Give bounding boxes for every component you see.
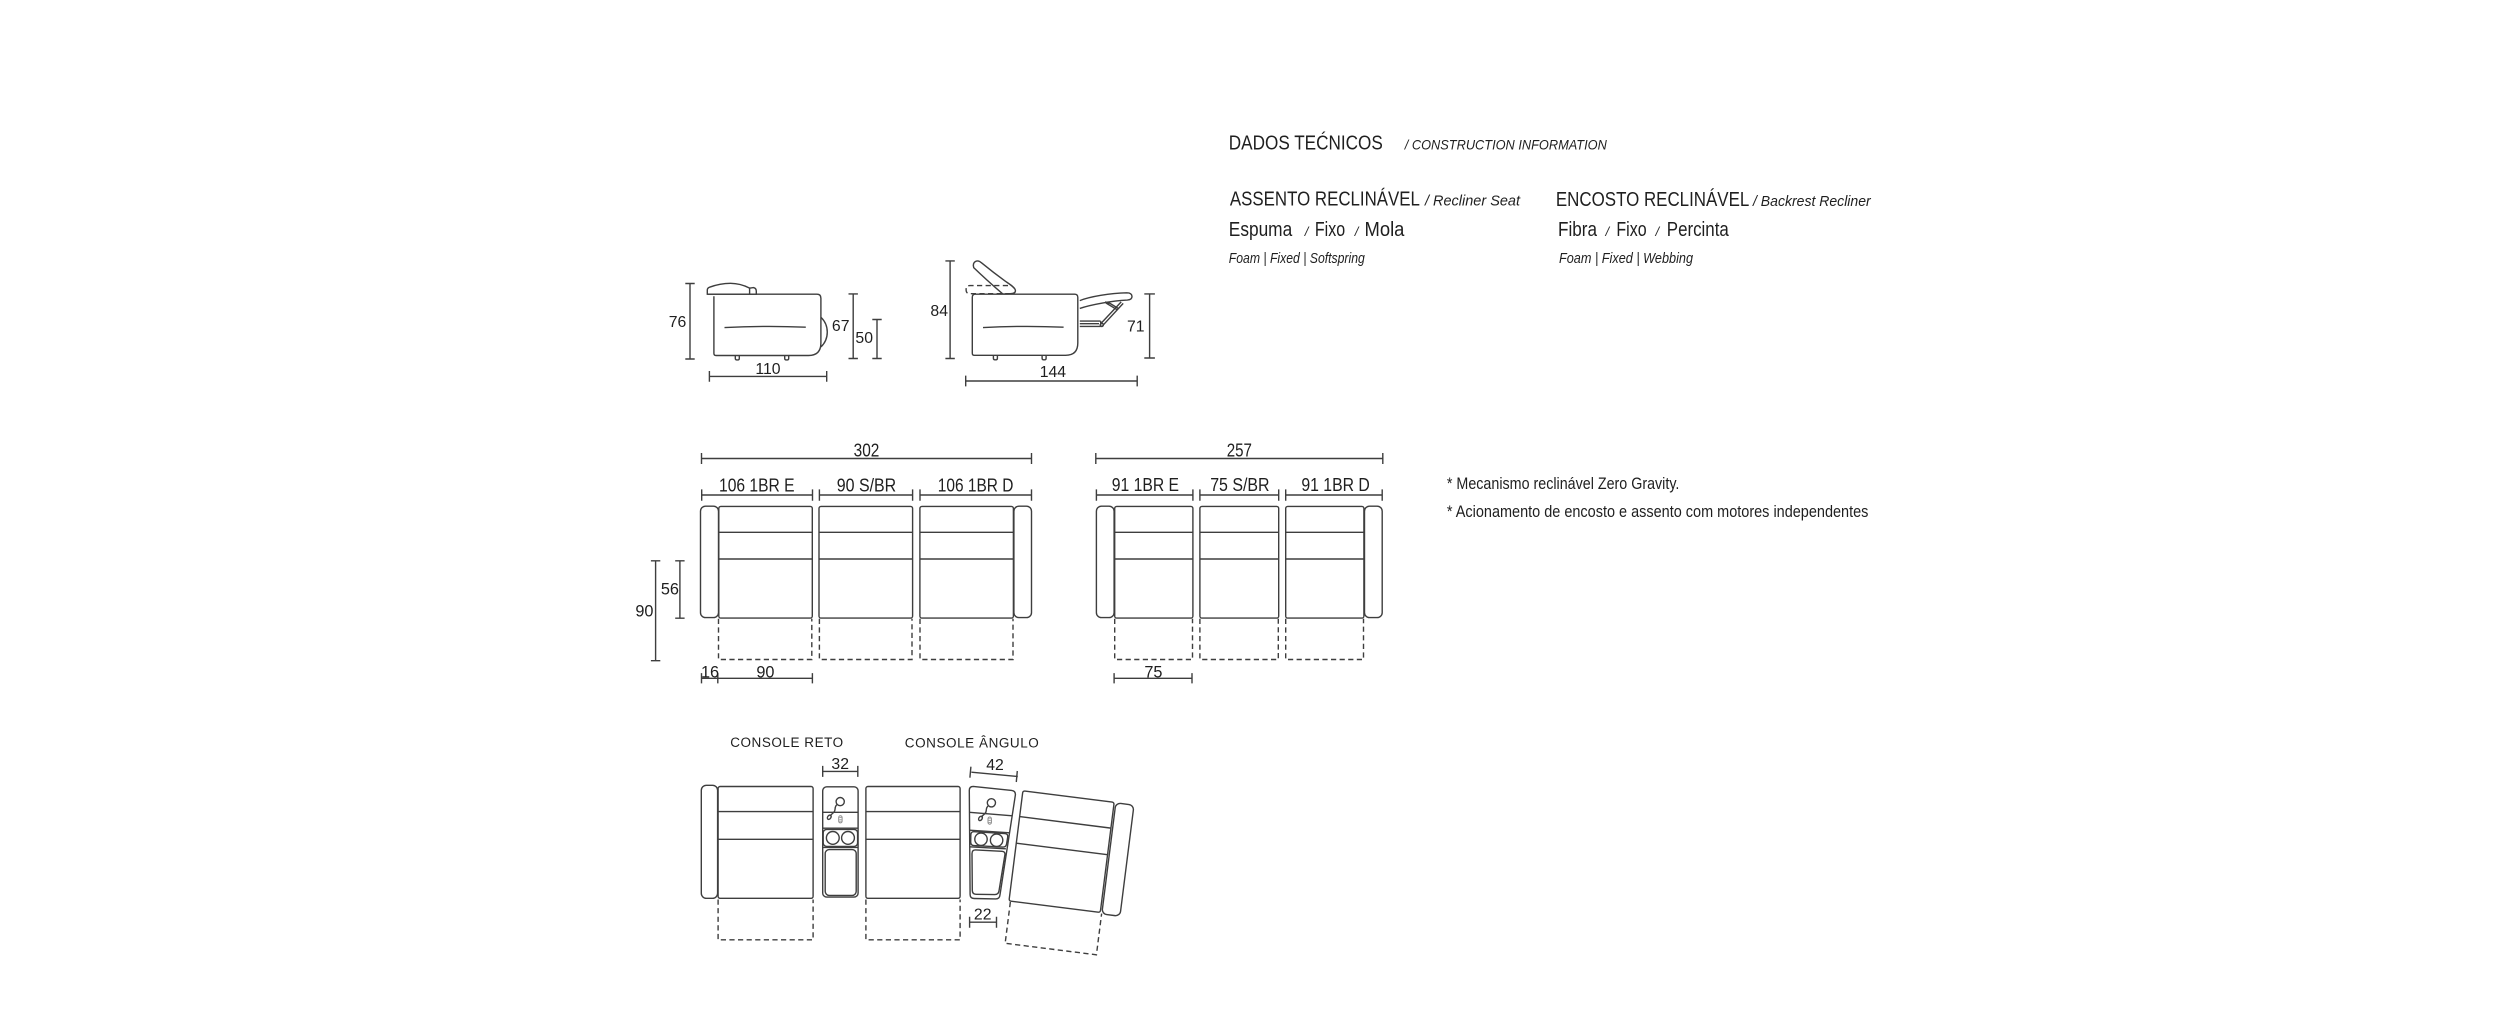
svg-text:32: 32 [831, 756, 849, 773]
svg-text:90: 90 [635, 603, 653, 621]
svg-text:71: 71 [1127, 318, 1145, 335]
svg-text:91 1BR D: 91 1BR D [1301, 475, 1370, 495]
svg-text:76: 76 [669, 314, 687, 331]
svg-text:257: 257 [1227, 440, 1252, 460]
svg-text:90: 90 [756, 664, 774, 682]
svg-text:90 S/BR: 90 S/BR [837, 476, 896, 496]
svg-text:22: 22 [974, 907, 992, 924]
svg-text:CONSOLE ÂNGULO: CONSOLE ÂNGULO [905, 736, 1039, 751]
svg-text:DADOS TEĆNICOS: DADOS TEĆNICOS [1229, 132, 1383, 155]
svg-text:/ Backrest Recliner: / Backrest Recliner [1752, 193, 1872, 210]
svg-text:/ Recliner Seat: / Recliner Seat [1424, 193, 1521, 210]
svg-text:ASSENTO RECLINÁVEL: ASSENTO RECLINÁVEL [1230, 188, 1420, 211]
svg-text:/ CONSTRUCTION INFORMATION: / CONSTRUCTION INFORMATION [1404, 137, 1608, 153]
svg-text:CONSOLE RETO: CONSOLE RETO [730, 735, 843, 750]
svg-text:144: 144 [1040, 364, 1067, 381]
svg-text:Percinta: Percinta [1667, 219, 1730, 241]
svg-text:84: 84 [930, 303, 948, 320]
svg-text:110: 110 [755, 361, 780, 378]
svg-text:302: 302 [854, 440, 880, 460]
svg-text:106 1BR D: 106 1BR D [938, 476, 1014, 496]
svg-text:Fixo: Fixo [1616, 219, 1646, 241]
svg-text:75 S/BR: 75 S/BR [1210, 475, 1269, 495]
svg-text:Mola: Mola [1365, 219, 1406, 241]
svg-text:75: 75 [1144, 664, 1162, 682]
svg-text:* Acionamento de encosto e as: * Acionamento de encosto e assento com m… [1447, 502, 1869, 521]
svg-text:50: 50 [855, 330, 873, 347]
svg-text:56: 56 [661, 581, 679, 599]
svg-text:67: 67 [832, 318, 850, 335]
svg-text:ENCOSTO RECLINÁVEL: ENCOSTO RECLINÁVEL [1556, 188, 1749, 211]
svg-text:Fixo: Fixo [1315, 219, 1345, 241]
svg-text:106 1BR E: 106 1BR E [719, 476, 795, 496]
svg-text:16: 16 [701, 664, 719, 682]
svg-text:42: 42 [986, 757, 1004, 774]
svg-text:Foam | Fixed | Webbing: Foam | Fixed | Webbing [1559, 251, 1693, 267]
svg-text:91 1BR E: 91 1BR E [1112, 475, 1179, 495]
svg-text:* Mecanismo reclinável Zero Gr: * Mecanismo reclinável Zero Gravity. [1447, 474, 1680, 493]
svg-text:Fibra: Fibra [1558, 219, 1598, 241]
svg-text:Foam | Fixed | Softspring: Foam | Fixed | Softspring [1229, 251, 1365, 267]
svg-text:Espuma: Espuma [1229, 219, 1293, 241]
